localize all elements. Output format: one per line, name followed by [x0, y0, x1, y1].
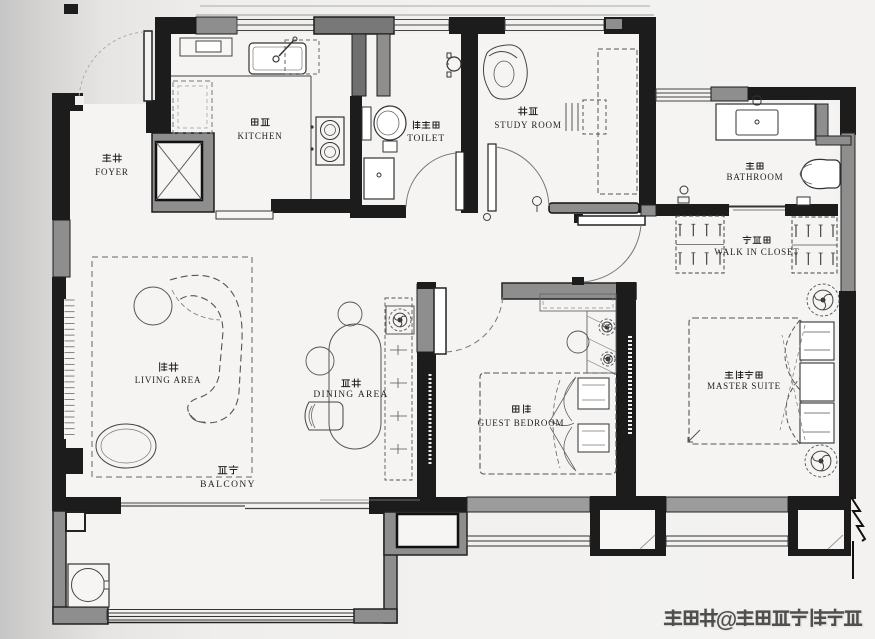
svg-text:LIVING AREA: LIVING AREA [135, 375, 202, 385]
svg-text:STUDY ROOM: STUDY ROOM [494, 120, 561, 130]
svg-text:WALK IN CLOSET: WALK IN CLOSET [714, 247, 799, 257]
svg-text:MASTER SUITE: MASTER SUITE [707, 381, 781, 391]
svg-text:TOILET: TOILET [407, 134, 445, 144]
svg-text:FOYER: FOYER [95, 167, 129, 177]
svg-text:GUEST BEDROOM: GUEST BEDROOM [478, 418, 565, 428]
svg-text:DINING AREA: DINING AREA [313, 390, 388, 400]
svg-text:KITCHEN: KITCHEN [237, 131, 282, 141]
svg-text:@: @ [716, 607, 737, 632]
svg-text:BATHROOM: BATHROOM [727, 172, 784, 182]
svg-text:BALCONY: BALCONY [200, 480, 256, 490]
